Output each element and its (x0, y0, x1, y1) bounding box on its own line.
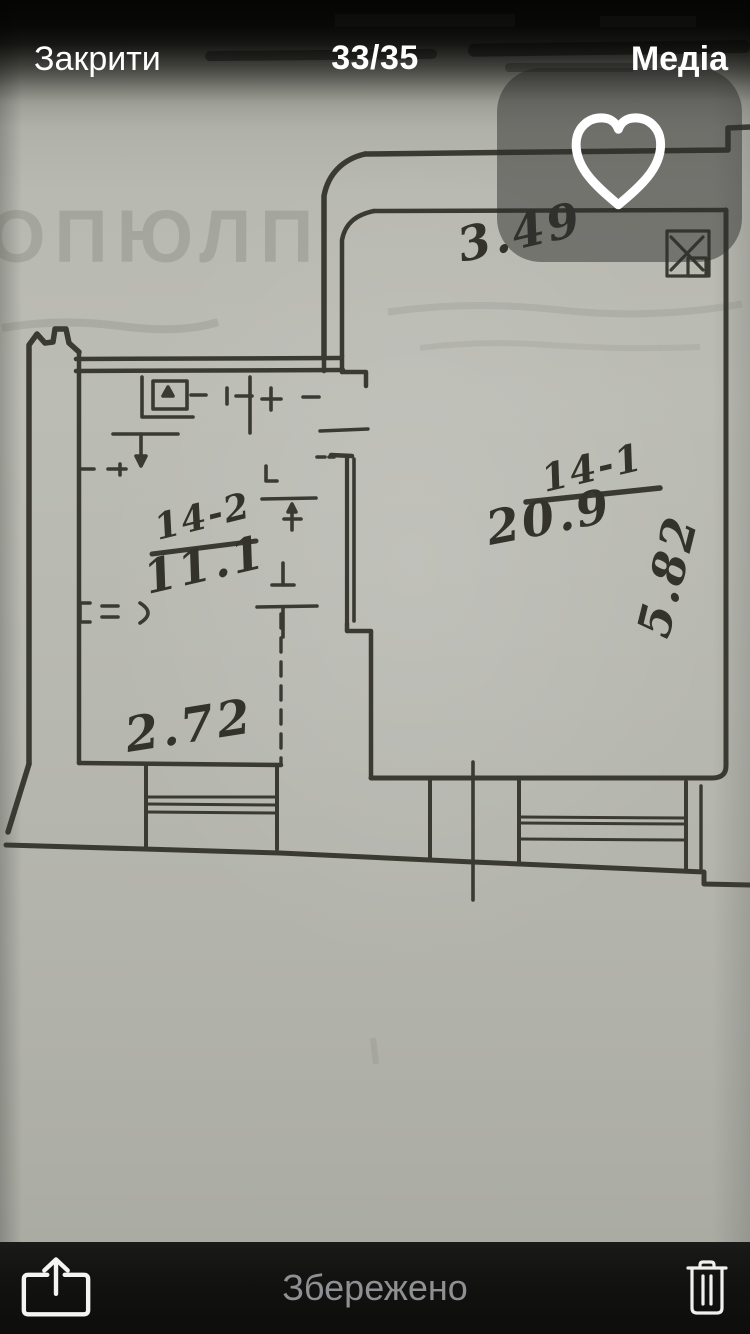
bottom-bar: Збережено (0, 1242, 750, 1334)
bottom-facade-wall (6, 845, 750, 885)
label-room-right-depth: 5.82 (626, 509, 708, 642)
label-room-right-area: 20.9 (481, 479, 617, 557)
window-left (146, 765, 277, 849)
door-opening-tick (320, 429, 368, 431)
dividing-wall (320, 356, 371, 778)
window-right (430, 762, 701, 900)
left-wall-notch (29, 329, 79, 764)
label-room-left-width: 2.72 (120, 688, 257, 764)
heart-icon (555, 100, 685, 230)
faint-watermark-text: ОПЮЛП (0, 195, 322, 278)
top-bar: Закрити 33/35 Медіа (0, 0, 750, 100)
media-button[interactable]: Медіа (631, 40, 728, 79)
photo-viewer-screen: ОПЮЛП (0, 0, 750, 1334)
saved-status-label: Збережено (0, 1267, 750, 1309)
